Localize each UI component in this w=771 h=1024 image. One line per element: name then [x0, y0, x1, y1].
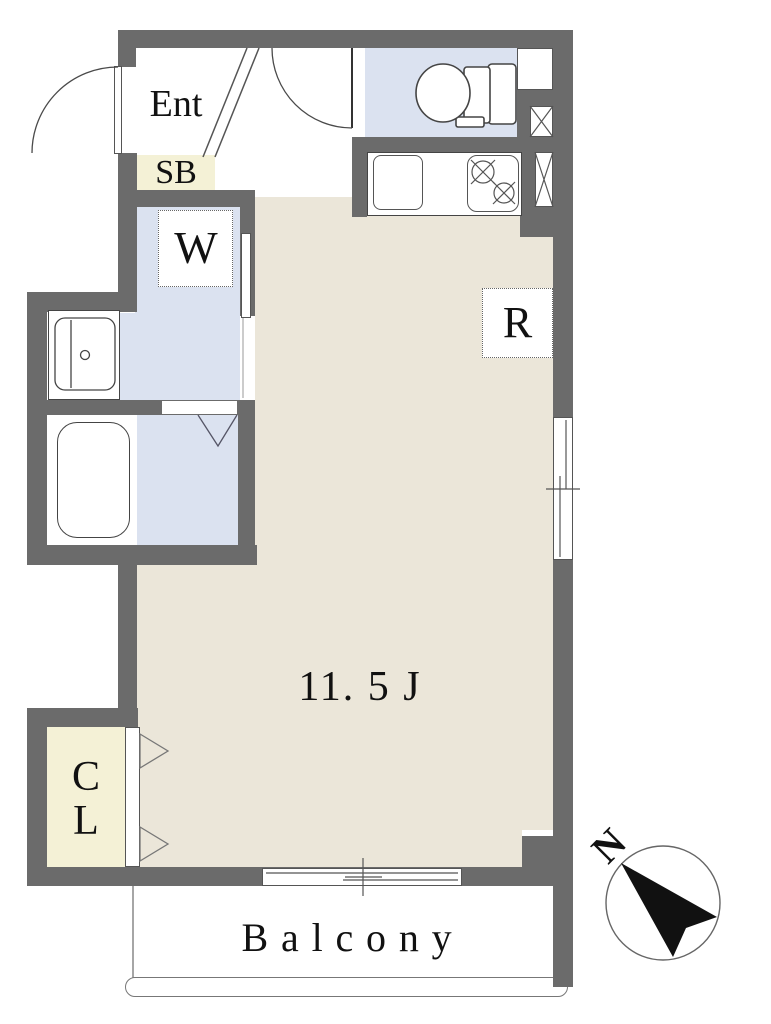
balcony-label: Balcony	[148, 918, 558, 958]
washing-machine-label: W	[156, 225, 236, 271]
pipe-shaft-upper	[530, 106, 553, 137]
main-room-floor-left-extension	[137, 565, 255, 867]
wall-bottom-right-step	[522, 836, 553, 867]
bathroom-door-opening	[162, 401, 237, 414]
refrigerator-label: R	[482, 301, 553, 345]
wall-bath-bottom	[27, 545, 257, 565]
wall-left-mid	[118, 153, 137, 292]
wall-kitchen-notch	[520, 207, 553, 237]
wall-beside-shaft2	[522, 152, 535, 207]
wall-left-outer	[27, 292, 47, 565]
compass	[606, 846, 720, 960]
toilet-room-floor	[365, 48, 517, 137]
compass-north-label: N	[577, 814, 641, 878]
toilet-shelf	[517, 48, 553, 90]
wall-below-toilet	[352, 137, 553, 152]
bathroom-entry-floor	[137, 415, 238, 545]
wall-left-lower	[118, 545, 137, 712]
entrance-label: Ent	[121, 85, 231, 123]
balcony-railing	[125, 977, 568, 997]
washbasin-unit	[48, 310, 120, 400]
entrance-door-arc	[32, 67, 118, 153]
closet-label-line1: C	[46, 756, 126, 798]
wall-beside-shaft1	[517, 106, 530, 137]
floor-plan: Ent SB W R 11. 5 J C L Balcony N	[0, 0, 771, 1024]
pipe-shaft-lower	[535, 152, 553, 207]
stove	[467, 155, 519, 212]
wall-step-sliver	[522, 830, 553, 836]
sliding-door-leaf	[241, 233, 251, 318]
wall-shelf-bottom	[517, 90, 553, 106]
shoe-box-label: SB	[136, 156, 216, 190]
wall-top	[118, 30, 573, 48]
washroom-floor-lower	[120, 313, 240, 400]
compass-arrow	[621, 863, 717, 957]
sliding-door-opening	[240, 316, 255, 400]
wall-left-above-door	[118, 48, 136, 67]
window-right	[553, 417, 573, 560]
wall-closet-left	[27, 708, 47, 885]
toilet-door-arc	[272, 48, 352, 128]
closet-label-line2: L	[46, 800, 126, 842]
main-room-size-label: 11. 5 J	[260, 666, 460, 708]
wall-bath-right	[238, 400, 255, 565]
window-balcony	[262, 868, 462, 886]
bathtub	[57, 422, 130, 538]
wall-below-shoebox	[118, 190, 253, 207]
kitchen-sink	[373, 155, 423, 210]
closet-door-strip	[125, 727, 140, 867]
compass-circle	[606, 846, 720, 960]
